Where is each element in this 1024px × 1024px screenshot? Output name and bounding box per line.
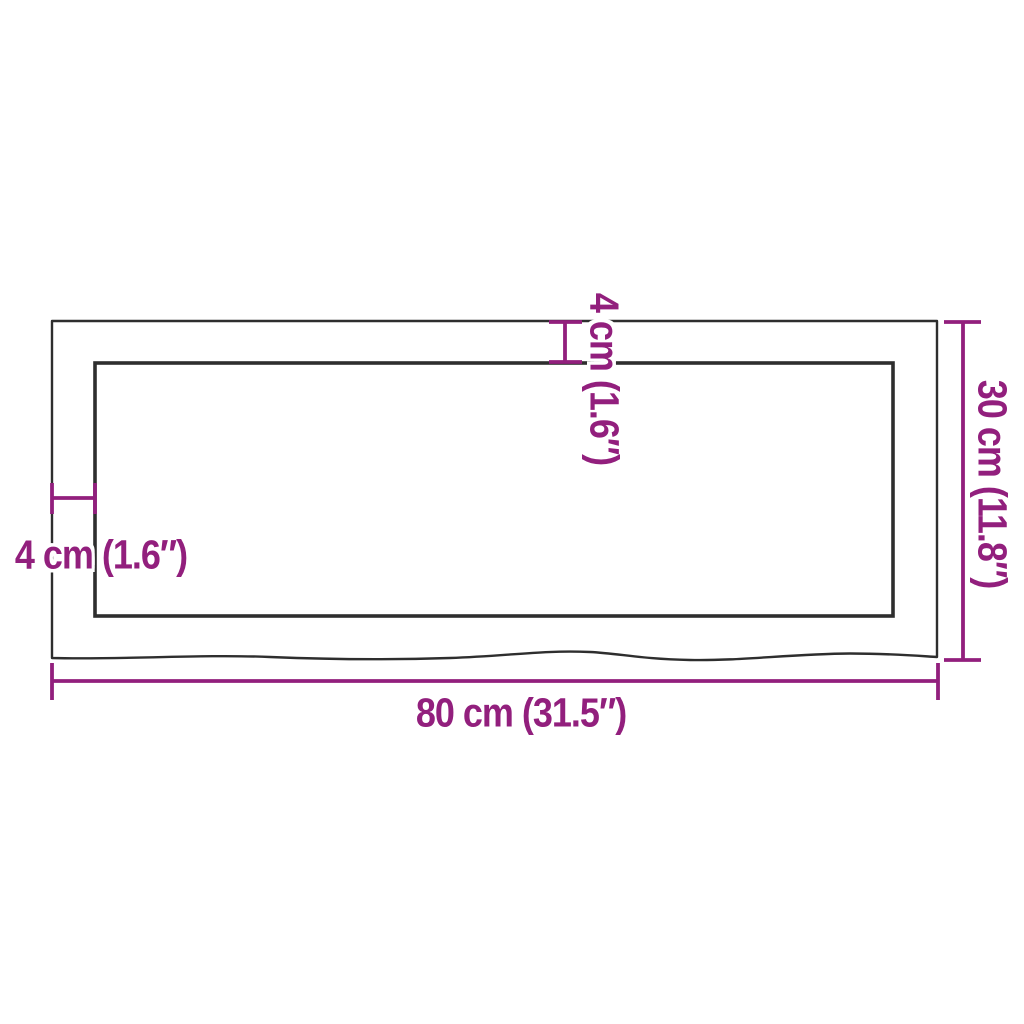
outer-panel-outline [52,321,937,660]
thickness-top-dimension-label: 4 cm (1.6″) [584,293,624,465]
thickness-left-dimension-indicator [52,483,95,514]
dimension-diagram: 80 cm (31.5″) 30 cm (11.8″) 4 cm (1.6″) … [0,0,1024,1024]
thickness-top-dimension-indicator [549,321,582,363]
inner-panel-outline [95,363,893,616]
diagram-graphics [0,0,1024,1024]
height-dimension-label: 30 cm (11.8″) [972,380,1012,588]
thickness-left-dimension-label: 4 cm (1.6″) [15,535,187,575]
width-dimension-label: 80 cm (31.5″) [416,693,626,733]
